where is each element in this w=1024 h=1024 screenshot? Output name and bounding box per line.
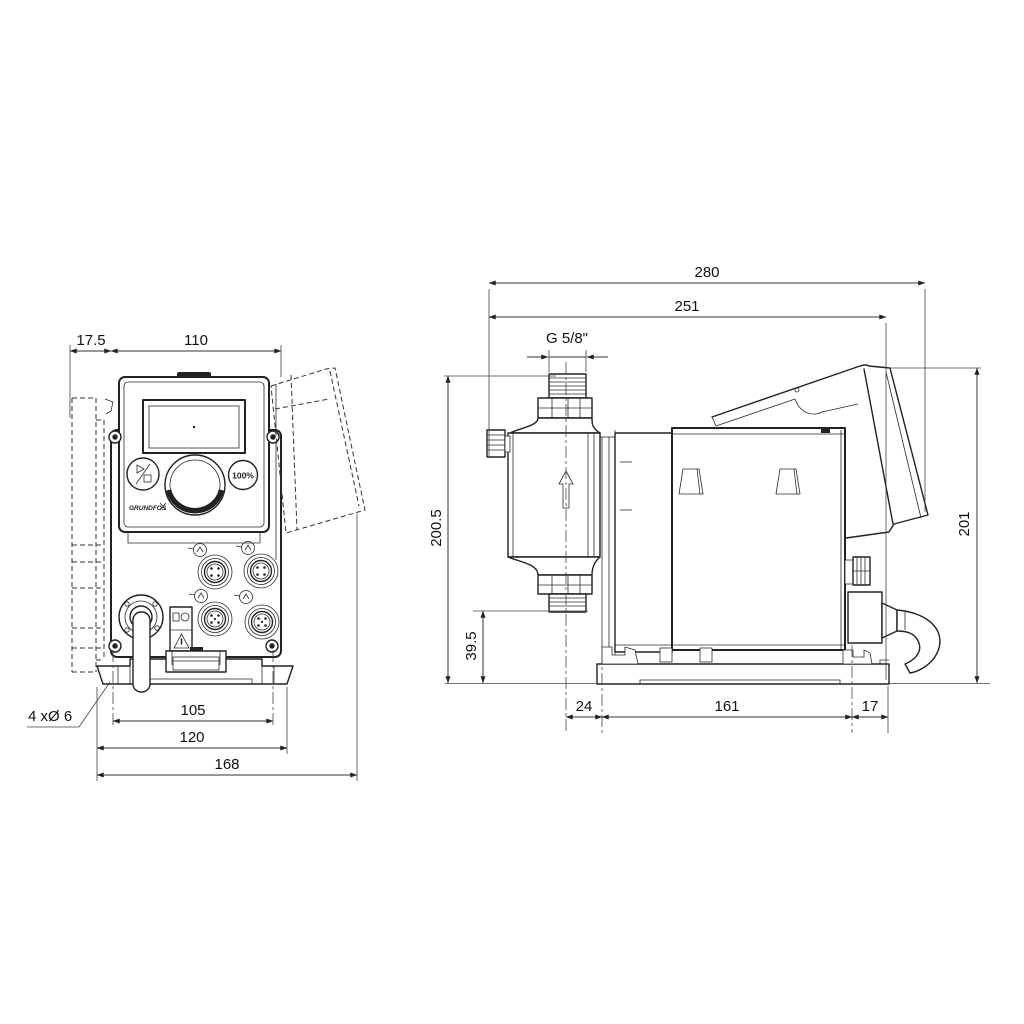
housing-main-section bbox=[672, 428, 845, 650]
screw-icon bbox=[267, 431, 279, 443]
discharge-nut bbox=[538, 398, 592, 418]
dosing-head bbox=[487, 374, 600, 612]
priming-button: 100% bbox=[229, 461, 258, 490]
head-bracket bbox=[600, 430, 615, 655]
dim-foot-hole-span: 161 bbox=[714, 698, 739, 715]
cable-strain-relief bbox=[882, 603, 897, 638]
dim-connection-clearance: 39.5 bbox=[463, 631, 480, 660]
dim-overall-depth: 280 bbox=[694, 264, 719, 281]
control-panel: 100% GRUNDFOS bbox=[119, 372, 269, 543]
warning-label bbox=[170, 607, 192, 651]
terminal-box bbox=[848, 592, 882, 643]
suction-nut bbox=[538, 575, 592, 594]
dim-overall-width: 168 bbox=[214, 756, 239, 773]
opened-cover-outline-front bbox=[271, 368, 365, 533]
priming-button-label: 100% bbox=[232, 471, 254, 481]
mounting-holes-note: 4 xØ 6 bbox=[28, 708, 72, 725]
power-cable-side bbox=[897, 610, 940, 673]
m12-connector-side bbox=[853, 557, 870, 585]
screw-icon bbox=[109, 431, 121, 443]
dim-base-hole-span: 120 bbox=[179, 729, 204, 746]
head-top-flare bbox=[510, 418, 600, 433]
bracket-clip-detail bbox=[105, 399, 113, 414]
cover-hinge-pin bbox=[821, 427, 830, 433]
cover-pivot bbox=[795, 388, 799, 392]
housing-front-section bbox=[615, 433, 672, 652]
front-view: 100% GRUNDFOS bbox=[27, 332, 365, 781]
head-body bbox=[508, 433, 600, 557]
grundfos-logo: GRUNDFOS bbox=[129, 503, 167, 512]
dim-height-above-base: 200.5 bbox=[428, 509, 445, 547]
deaeration-valve-knob bbox=[487, 430, 510, 457]
motor-housing bbox=[615, 428, 845, 662]
clamp-tab bbox=[660, 648, 672, 662]
rear-foot bbox=[843, 650, 872, 664]
dim-body-width: 110 bbox=[184, 332, 208, 349]
click-wheel bbox=[165, 455, 225, 515]
rear-connections bbox=[845, 557, 940, 673]
dim-center-to-front-hole: 24 bbox=[576, 698, 593, 715]
hidden-pump-head-outline bbox=[72, 398, 104, 672]
power-cable-front bbox=[133, 612, 150, 692]
panel-top-clip bbox=[177, 372, 211, 378]
display-dot bbox=[193, 426, 195, 428]
technical-drawing-page: 100% GRUNDFOS bbox=[0, 0, 1024, 1024]
side-view: 280 251 G 5/8" 200.5 39.5 201 24 161 bbox=[428, 264, 990, 733]
dim-depth-to-cover: 251 bbox=[674, 298, 699, 315]
discharge-thread bbox=[549, 374, 586, 398]
dim-bracket-offset: 17.5 bbox=[76, 332, 105, 349]
screw-icon bbox=[266, 640, 278, 652]
dosing-pump-dimensional-drawing: 100% GRUNDFOS bbox=[0, 0, 1024, 1024]
clamp-tab bbox=[700, 648, 712, 662]
dim-overall-height: 201 bbox=[956, 511, 973, 536]
suction-thread bbox=[549, 594, 586, 612]
mounting-latch bbox=[166, 647, 226, 672]
screw-icon bbox=[109, 640, 121, 652]
head-bottom-flare bbox=[508, 557, 600, 575]
dim-mounting-hole-span: 105 bbox=[180, 702, 205, 719]
dim-connection-thread: G 5/8" bbox=[546, 330, 588, 347]
dim-rear-hole-to-edge: 17 bbox=[862, 698, 879, 715]
start-stop-button bbox=[127, 458, 159, 490]
